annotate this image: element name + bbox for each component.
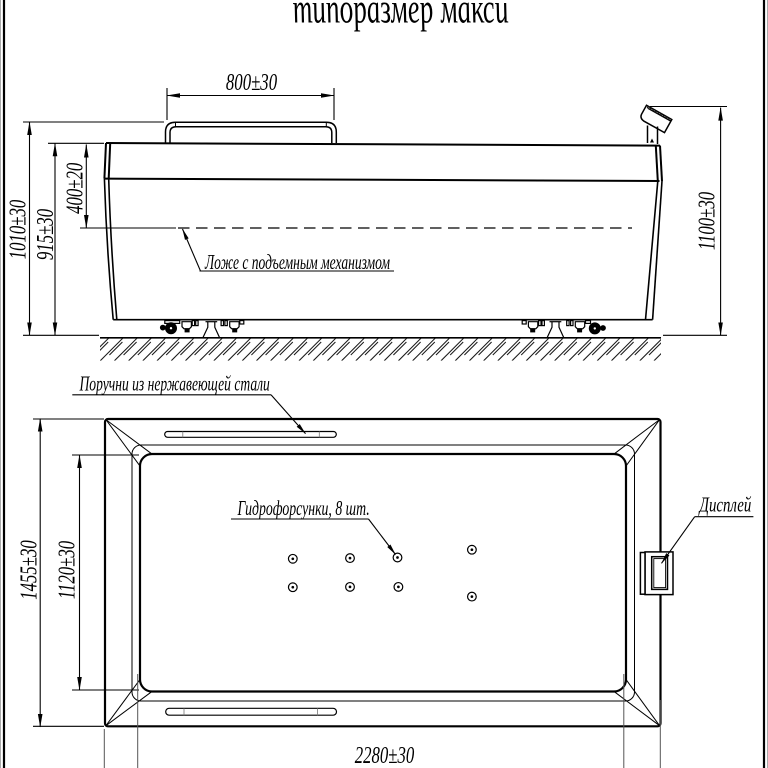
svg-text:1100±30: 1100±30 [695,191,720,250]
svg-text:2280±30: 2280±30 [355,743,415,768]
svg-text:915±30: 915±30 [33,208,58,260]
svg-text:Гидрофорсунки, 8 шт.: Гидрофорсунки, 8 шт. [237,496,370,520]
svg-text:Дисплей: Дисплей [698,493,751,516]
svg-text:400±20: 400±20 [63,162,88,214]
svg-text:Ложе с подъемным механизмом: Ложе с подъемным механизмом [204,250,390,274]
svg-text:1455±30: 1455±30 [17,540,42,600]
svg-text:1120±30: 1120±30 [55,540,80,599]
svg-text:1010±30: 1010±30 [6,199,31,259]
svg-text:800±30: 800±30 [226,70,278,95]
svg-text:типоразмер макси: типоразмер макси [289,0,511,32]
svg-text:Поручни из нержавеющей стали: Поручни из нержавеющей стали [79,372,270,396]
